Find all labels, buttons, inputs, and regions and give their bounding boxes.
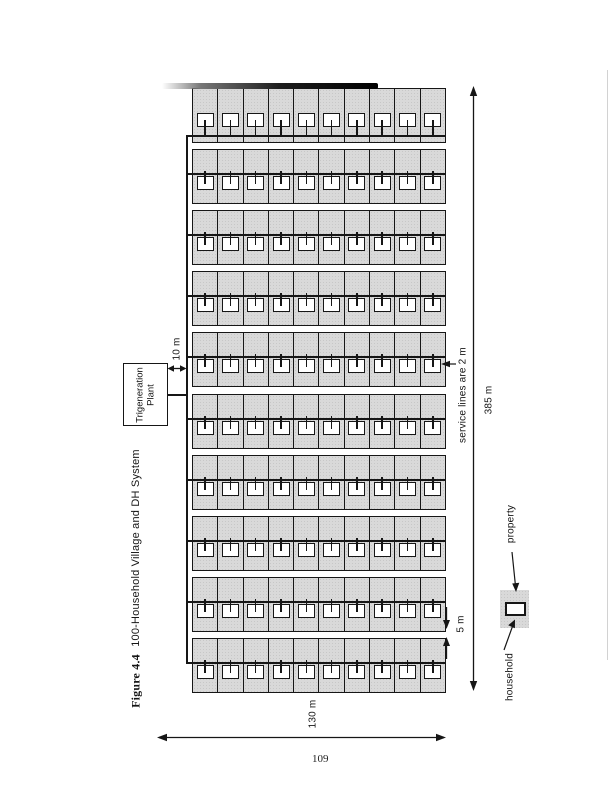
property-plot bbox=[293, 333, 318, 386]
width-dimension-arrowhead-right bbox=[436, 734, 446, 741]
property-plot bbox=[344, 150, 369, 203]
property-plot bbox=[243, 517, 268, 570]
property-plot bbox=[293, 639, 318, 692]
plot-row bbox=[192, 577, 446, 632]
property-plot bbox=[193, 272, 217, 325]
property-plot bbox=[369, 333, 394, 386]
property-plot bbox=[217, 517, 242, 570]
property-plot bbox=[394, 639, 419, 692]
property-plot bbox=[243, 211, 268, 264]
figure-caption-label: Figure 4.4 bbox=[129, 654, 144, 708]
property-plot bbox=[243, 150, 268, 203]
document-page: Trigeneration Plant 10 m 385 m service l… bbox=[0, 0, 612, 792]
property-plot bbox=[193, 333, 217, 386]
plot-row bbox=[192, 149, 446, 204]
property-plot bbox=[369, 456, 394, 509]
property-plot bbox=[344, 272, 369, 325]
property-plot bbox=[394, 211, 419, 264]
property-plot bbox=[193, 639, 217, 692]
service-lines-note: service lines are 2 m bbox=[458, 347, 469, 443]
property-plot bbox=[318, 456, 343, 509]
dimension-label-10m: 10 m bbox=[172, 337, 183, 360]
property-plot bbox=[369, 211, 394, 264]
property-plot bbox=[268, 272, 293, 325]
property-plot bbox=[420, 456, 445, 509]
distribution-main-line bbox=[186, 418, 445, 420]
property-plot bbox=[193, 578, 217, 631]
distribution-main-line bbox=[186, 295, 445, 297]
property-plot bbox=[193, 150, 217, 203]
property-plot bbox=[293, 211, 318, 264]
service-line bbox=[407, 120, 409, 135]
property-plot bbox=[268, 578, 293, 631]
property-plot bbox=[293, 456, 318, 509]
property-plot bbox=[268, 456, 293, 509]
property-plot bbox=[293, 395, 318, 448]
distribution-main-line bbox=[186, 356, 445, 358]
plant-connection-line bbox=[167, 394, 187, 396]
property-plot bbox=[318, 333, 343, 386]
property-plot bbox=[268, 333, 293, 386]
property-plot bbox=[394, 333, 419, 386]
property-callout-line bbox=[512, 552, 516, 586]
property-plot bbox=[318, 639, 343, 692]
property-plot bbox=[318, 578, 343, 631]
legend-household-swatch bbox=[505, 602, 526, 616]
distribution-main-line bbox=[186, 662, 445, 664]
property-plot bbox=[420, 150, 445, 203]
service-line bbox=[280, 120, 282, 135]
property-plot bbox=[243, 272, 268, 325]
property-plot bbox=[318, 211, 343, 264]
service-line bbox=[381, 120, 383, 135]
property-plot bbox=[293, 578, 318, 631]
property-plot bbox=[193, 456, 217, 509]
height-dimension-arrowhead-top bbox=[470, 86, 477, 96]
plot-row bbox=[192, 638, 446, 693]
property-plot bbox=[217, 456, 242, 509]
property-plot bbox=[369, 395, 394, 448]
width-dimension-arrowhead-left bbox=[157, 734, 167, 741]
height-dimension-arrowhead-bottom bbox=[470, 681, 477, 691]
property-plot bbox=[268, 639, 293, 692]
property-plot bbox=[217, 578, 242, 631]
property-plot bbox=[394, 456, 419, 509]
plot-row bbox=[192, 210, 446, 265]
property-plot bbox=[420, 211, 445, 264]
property-plot bbox=[369, 578, 394, 631]
scan-smudge-artifact bbox=[162, 83, 378, 89]
property-plot bbox=[318, 517, 343, 570]
property-plot bbox=[344, 211, 369, 264]
property-plot bbox=[344, 333, 369, 386]
property-plot bbox=[217, 211, 242, 264]
property-plot bbox=[420, 517, 445, 570]
property-plot bbox=[420, 578, 445, 631]
plot-row bbox=[192, 455, 446, 510]
property-plot bbox=[193, 211, 217, 264]
property-plot bbox=[394, 395, 419, 448]
legend-property-label: property bbox=[506, 505, 517, 543]
property-plot bbox=[243, 333, 268, 386]
distribution-main-line bbox=[186, 540, 445, 542]
property-plot bbox=[344, 578, 369, 631]
distribution-main-line bbox=[186, 135, 445, 137]
page-number: 109 bbox=[312, 753, 329, 765]
property-plot bbox=[420, 272, 445, 325]
legend-household-label: household bbox=[505, 653, 516, 701]
dimension-label-5m: 5 m bbox=[456, 615, 467, 632]
property-plot bbox=[394, 578, 419, 631]
service-line bbox=[204, 120, 206, 135]
service-line bbox=[255, 120, 257, 135]
property-plot bbox=[217, 150, 242, 203]
plot-row bbox=[192, 271, 446, 326]
dimension-label-130m: 130 m bbox=[308, 700, 319, 729]
property-plot bbox=[268, 517, 293, 570]
distribution-main-line bbox=[186, 234, 445, 236]
plot-row bbox=[192, 516, 446, 571]
service-line bbox=[356, 120, 358, 135]
property-plot bbox=[243, 578, 268, 631]
figure-caption-title: 100-Household Village and DH System bbox=[130, 449, 142, 647]
property-plot bbox=[193, 395, 217, 448]
distribution-main-line bbox=[186, 601, 445, 603]
property-plot bbox=[394, 517, 419, 570]
property-plot bbox=[394, 150, 419, 203]
service-line bbox=[230, 120, 232, 135]
property-plot bbox=[293, 150, 318, 203]
property-plot bbox=[344, 395, 369, 448]
property-plot bbox=[420, 639, 445, 692]
property-plot bbox=[420, 333, 445, 386]
property-plot bbox=[318, 395, 343, 448]
property-plot bbox=[420, 395, 445, 448]
plot-row bbox=[192, 394, 446, 449]
service-line bbox=[432, 120, 434, 135]
distribution-main-line bbox=[186, 173, 445, 175]
trigeneration-plant-label: Trigeneration Plant bbox=[134, 367, 157, 423]
property-plot bbox=[217, 639, 242, 692]
property-plot bbox=[243, 456, 268, 509]
property-plot bbox=[243, 395, 268, 448]
page-edge-artifact bbox=[607, 70, 608, 660]
service-line bbox=[331, 120, 333, 135]
property-plot bbox=[217, 272, 242, 325]
property-plot bbox=[369, 272, 394, 325]
trunk-main-line bbox=[186, 135, 188, 663]
property-plot bbox=[318, 150, 343, 203]
service-line bbox=[306, 120, 308, 135]
property-plot bbox=[369, 639, 394, 692]
property-plot bbox=[268, 395, 293, 448]
plant-gap-arrowhead-left bbox=[168, 365, 175, 371]
property-plot bbox=[268, 150, 293, 203]
property-plot bbox=[217, 395, 242, 448]
property-plot bbox=[344, 456, 369, 509]
property-plot bbox=[369, 150, 394, 203]
property-plot bbox=[369, 517, 394, 570]
dimension-label-385m: 385 m bbox=[484, 386, 495, 415]
trigeneration-plant-box: Trigeneration Plant bbox=[123, 363, 168, 426]
distribution-main-line bbox=[186, 479, 445, 481]
property-plot bbox=[318, 272, 343, 325]
property-plot bbox=[293, 272, 318, 325]
property-plot bbox=[268, 211, 293, 264]
property-plot bbox=[293, 517, 318, 570]
property-plot bbox=[344, 639, 369, 692]
property-plot bbox=[394, 272, 419, 325]
plot-row bbox=[192, 332, 446, 387]
household-callout-line bbox=[504, 625, 513, 650]
property-plot bbox=[344, 517, 369, 570]
property-plot bbox=[193, 517, 217, 570]
property-plot bbox=[243, 639, 268, 692]
property-plot bbox=[217, 333, 242, 386]
